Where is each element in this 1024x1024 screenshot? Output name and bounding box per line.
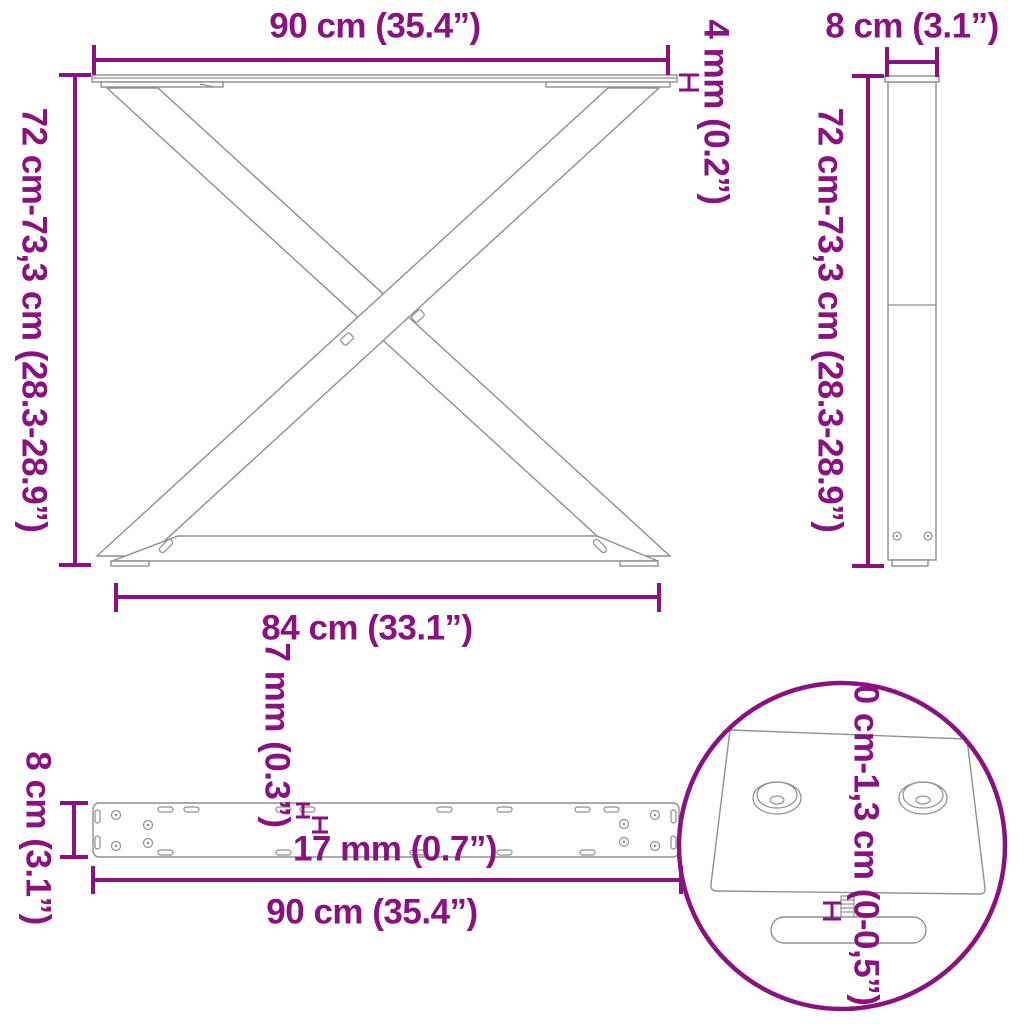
front-plate-thickness-label: 4 mm (0.2”)	[699, 19, 734, 204]
front-foot-right	[620, 561, 658, 566]
front-base-bar	[112, 536, 658, 561]
side-view-drawing	[885, 76, 939, 566]
detail-view-drawing	[679, 683, 1005, 1009]
diagram-canvas: 90 cm (35.4”) 72 cm-73,3 cm (28.3-28.9”)…	[0, 0, 1024, 1024]
side-foot	[892, 560, 928, 566]
side-width-label: 8 cm (3.1”)	[825, 9, 998, 44]
top-hole-width-label: 7 mm (0.3”)	[260, 642, 295, 827]
top-hole-length-label: 17 mm (0.7”)	[293, 832, 497, 867]
detail-adjustment-label: 0 cm-1,3 cm (0-0,5”)	[849, 685, 884, 1006]
front-height-label: 72 cm-73,3 cm (28.3-28.9”)	[17, 108, 52, 533]
side-height-label: 72 cm-73,3 cm (28.3-28.9”)	[813, 108, 848, 533]
front-foot-left	[111, 561, 149, 566]
front-base-width-label: 84 cm (33.1”)	[261, 611, 472, 646]
side-top-cap	[885, 76, 939, 82]
front-view-drawing	[92, 75, 677, 566]
top-depth-label: 8 cm (3.1”)	[21, 751, 56, 924]
front-top-plate-right	[546, 82, 670, 87]
front-top-width-label: 90 cm (35.4”)	[269, 9, 480, 44]
side-leg-body	[888, 82, 936, 560]
top-length-label: 90 cm (35.4”)	[266, 895, 477, 930]
